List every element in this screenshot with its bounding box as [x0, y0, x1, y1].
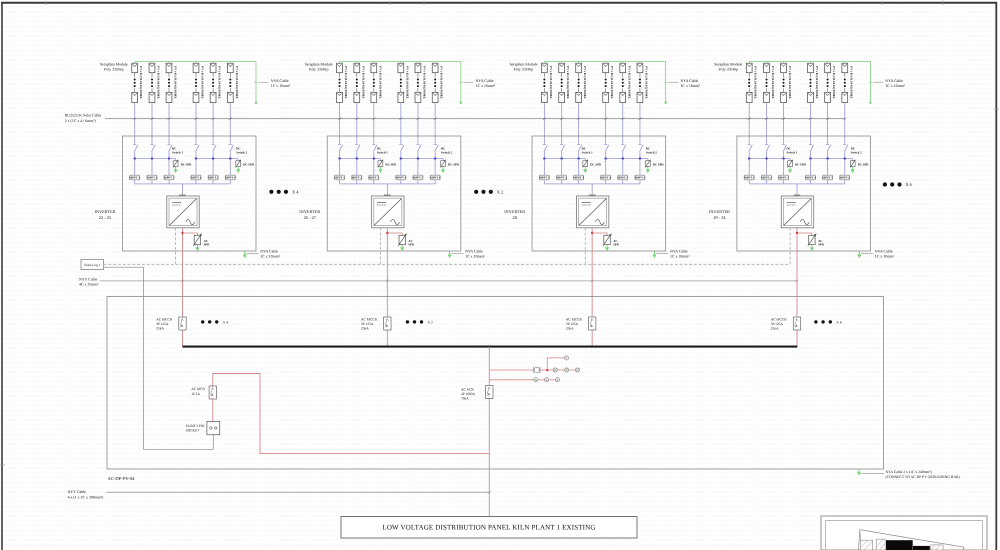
svg-text:4C x 35mm²: 4C x 35mm² — [79, 283, 99, 287]
svg-text:1P 2A: 1P 2A — [191, 392, 200, 396]
svg-text:INVERTER: INVERTER — [95, 209, 116, 214]
svg-text:2 x (1C x 4 / 6mm²): 2 x (1C x 4 / 6mm²) — [65, 119, 97, 123]
svg-text:NYY Cable: NYY Cable — [68, 490, 87, 494]
svg-text:SOCKET: SOCKET — [186, 428, 200, 432]
svg-text:AC ACB: AC ACB — [461, 387, 474, 391]
svg-text:NYA Cable 2 x (1C x 240mm²): NYA Cable 2 x (1C x 240mm²) — [886, 470, 933, 474]
svg-text:INVERTER: INVERTER — [709, 209, 730, 214]
svg-text:X 2: X 2 — [497, 189, 503, 194]
svg-text:22 - 25: 22 - 25 — [99, 215, 111, 220]
svg-text:X 6: X 6 — [836, 320, 842, 324]
svg-text:29 - 34: 29 - 34 — [713, 215, 726, 220]
svg-text:LOW VOLTAGE DISTRIBUTION PANEL: LOW VOLTAGE DISTRIBUTION PANEL KILN PLAN… — [382, 524, 595, 532]
svg-text:X 6: X 6 — [905, 182, 912, 187]
svg-text:AC-DP-PV-04: AC-DP-PV-04 — [108, 476, 136, 481]
svg-text:EURO 3 PIN: EURO 3 PIN — [186, 424, 205, 428]
svg-text:X 2: X 2 — [427, 320, 433, 324]
svg-text:BU2522-K Solar Cable: BU2522-K Solar Cable — [65, 114, 102, 118]
svg-text:4P 1600A: 4P 1600A — [461, 392, 475, 396]
svg-text:NYY Cable: NYY Cable — [79, 277, 98, 281]
svg-text:X 4: X 4 — [223, 320, 229, 324]
svg-text:X 4: X 4 — [292, 189, 299, 194]
svg-text:4 x (1 x 1C x 300mm²): 4 x (1 x 1C x 300mm²) — [68, 495, 104, 499]
svg-text:INVERTER: INVERTER — [299, 209, 320, 214]
svg-text:Solar-Log 1: Solar-Log 1 — [84, 263, 101, 267]
svg-text:(CONNECT TO AC DP PV GROUNDING: (CONNECT TO AC DP PV GROUNDING BAR) — [886, 475, 961, 479]
svg-text:AC MCB: AC MCB — [191, 387, 205, 391]
svg-text:INVERTER: INVERTER — [504, 209, 525, 214]
svg-text:76kA: 76kA — [461, 397, 469, 401]
svg-text:26 - 27: 26 - 27 — [304, 215, 317, 220]
svg-text:28: 28 — [513, 215, 517, 220]
